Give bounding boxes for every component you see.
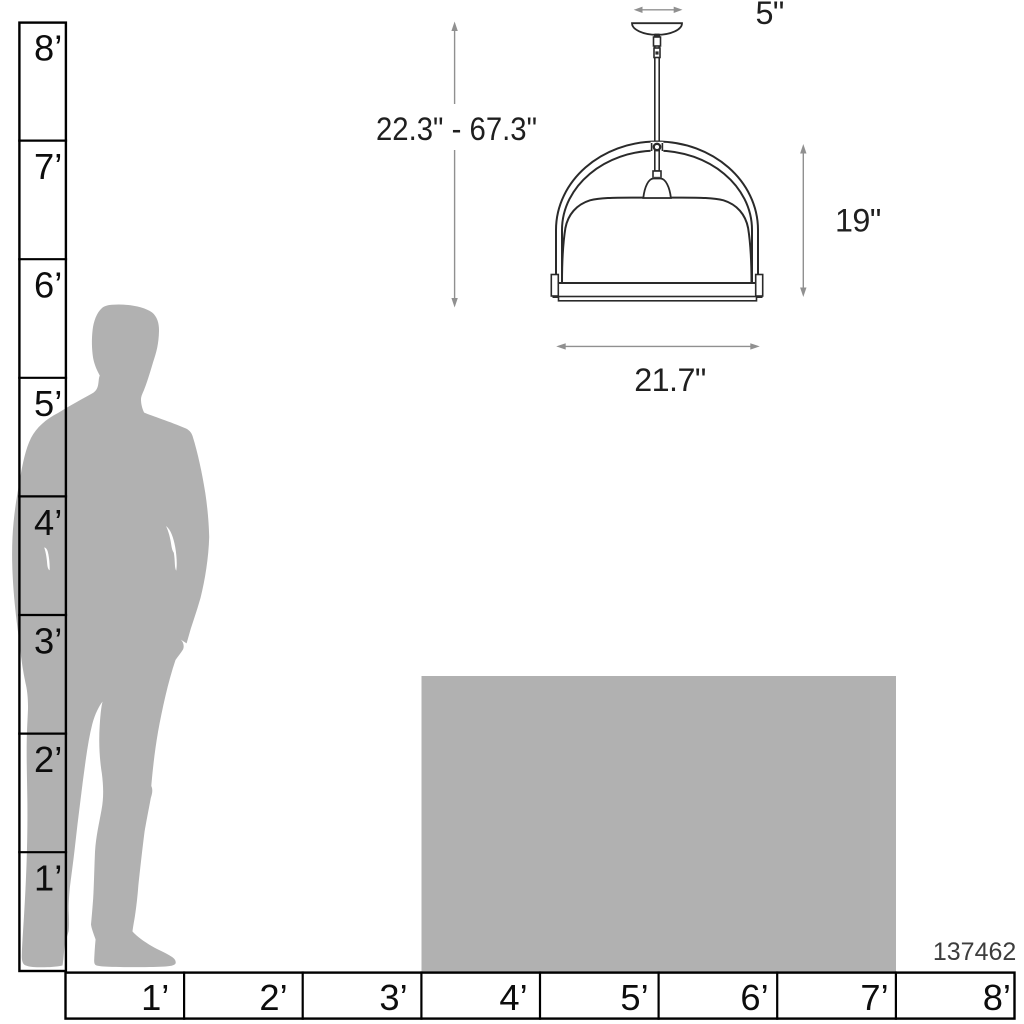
svg-text:5’: 5’ bbox=[620, 977, 648, 1018]
svg-text:19": 19" bbox=[835, 202, 881, 238]
svg-text:5’: 5’ bbox=[34, 383, 62, 424]
svg-text:8’: 8’ bbox=[983, 977, 1011, 1018]
svg-text:6’: 6’ bbox=[34, 265, 62, 306]
svg-text:1’: 1’ bbox=[34, 858, 62, 899]
svg-text:3’: 3’ bbox=[379, 977, 407, 1018]
svg-text:137462: 137462 bbox=[933, 938, 1016, 966]
svg-text:7’: 7’ bbox=[860, 977, 888, 1018]
svg-text:2’: 2’ bbox=[259, 977, 287, 1018]
svg-text:22.3" - 67.3": 22.3" - 67.3" bbox=[376, 111, 537, 147]
svg-text:8’: 8’ bbox=[34, 27, 62, 68]
svg-text:4’: 4’ bbox=[499, 977, 527, 1018]
svg-text:6’: 6’ bbox=[740, 977, 768, 1018]
svg-text:4’: 4’ bbox=[34, 502, 62, 543]
svg-text:1’: 1’ bbox=[141, 977, 169, 1018]
svg-text:7’: 7’ bbox=[34, 146, 62, 187]
svg-text:5": 5" bbox=[756, 0, 784, 31]
svg-text:3’: 3’ bbox=[34, 620, 62, 661]
svg-text:2’: 2’ bbox=[34, 739, 62, 780]
svg-text:21.7": 21.7" bbox=[634, 362, 706, 398]
